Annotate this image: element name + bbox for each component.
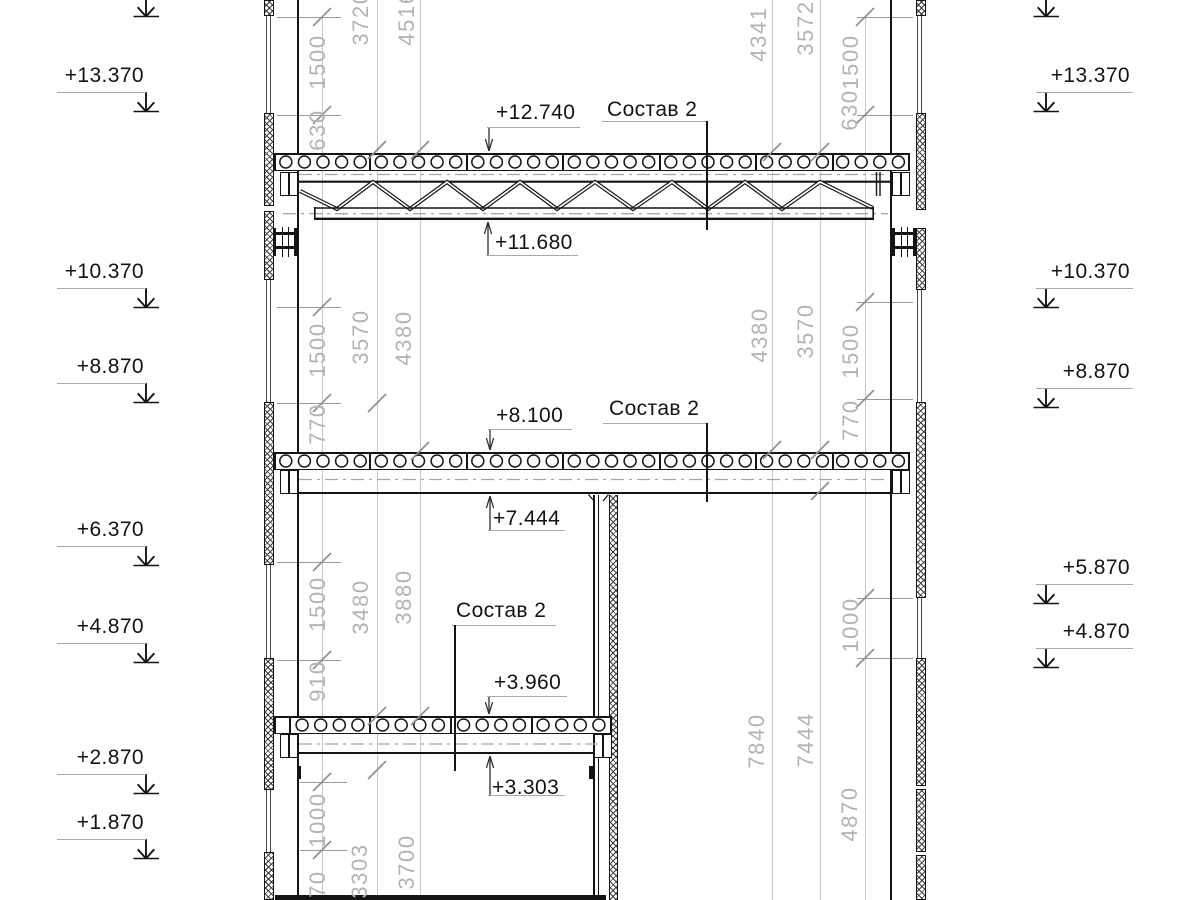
composition-underline [602,121,706,122]
composition-label: Состав 2 [607,97,697,122]
elevation-mark-right: +13.370 [1040,63,1130,88]
dimension-text: 770 [306,376,330,472]
dimension-text: 7840 [745,693,769,789]
dimension-text: 3880 [392,549,416,645]
dimension-text: 3700 [395,814,419,900]
composition-underline [452,625,556,626]
level-label: +3.303 [492,775,559,800]
dimension-text: 7444 [794,692,818,788]
elevation-mark-left: +6.370 [50,517,144,542]
dimension-text: 4870 [838,766,862,862]
elevation-mark-left: +13.370 [50,63,144,88]
level-label: +12.740 [496,100,575,125]
dimension-text: 4516 [395,0,419,66]
elevation-mark-left: +4.870 [50,614,144,639]
composition-underline [603,423,707,424]
level-underline [488,795,565,796]
level-label: +3.960 [494,670,561,695]
elevation-underline [57,92,146,93]
elevation-underline [57,546,146,547]
elevation-mark-right: +5.870 [1040,555,1130,580]
elevation-mark-right: +10.370 [1040,259,1130,284]
elevation-underline [1036,648,1133,649]
level-underline [486,255,578,256]
composition-label: Состав 2 [609,396,699,421]
dimension-text: 3570 [349,289,373,385]
elevation-mark-left: +2.870 [50,745,144,770]
dimension-text: 3570 [794,283,818,379]
dimension-text: 970 [306,843,330,900]
dimension-text: 630 [838,62,862,158]
dimension-text: 4380 [748,287,772,383]
composition-leader [706,121,708,230]
dimension-text: 3572 [794,0,818,76]
dimension-text: 3303 [348,823,372,900]
level-label: +11.680 [495,230,573,255]
elevation-mark-left: +10.370 [50,259,144,284]
dimension-text: 4341 [747,0,771,82]
elevation-underline [1036,92,1133,93]
composition-leader [706,423,708,502]
elevation-mark-left: +8.870 [50,354,144,379]
elevation-underline [57,839,146,840]
dimension-text: 1000 [839,577,863,673]
elevation-underline [1036,388,1133,389]
truss-and-symbols-overlay [0,0,1200,900]
composition-label: Состав 2 [456,598,546,623]
level-label: +8.100 [496,403,563,428]
level-underline [488,429,572,430]
elevation-underline [1036,288,1133,289]
dimension-text: 630 [306,82,330,178]
elevation-underline [57,774,146,775]
elevation-mark-right: +8.870 [1040,359,1130,384]
dimension-text: 770 [839,372,863,468]
composition-leader [454,625,456,771]
dimension-text: 3720 [349,0,373,66]
level-underline [487,127,580,128]
level-underline [488,530,565,531]
dimension-text: 3480 [349,559,373,655]
dimension-text: 910 [306,633,330,729]
dimension-text: 4380 [392,290,416,386]
section-drawing-canvas: +13.370+10.370+8.870+6.370+4.870+2.870+1… [0,0,1200,900]
elevation-mark-right: +4.870 [1040,619,1130,644]
level-underline [487,696,567,697]
elevation-underline [1036,584,1133,585]
elevation-mark-left: +1.870 [50,810,144,835]
level-label: +7.444 [493,506,560,531]
elevation-underline [57,643,146,644]
elevation-underline [57,288,146,289]
elevation-underline [57,383,146,384]
